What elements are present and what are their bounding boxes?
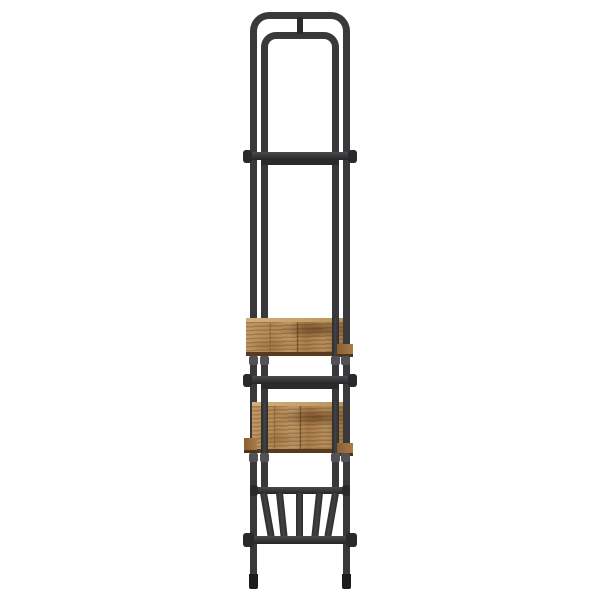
front-arch-frame (250, 12, 350, 588)
rail-end-cap (243, 533, 254, 547)
slat-shelf-bottom-rail (246, 536, 354, 544)
upper-rail-front (247, 152, 353, 160)
arch-connector-stub (297, 17, 303, 34)
post-connector-cap (249, 356, 258, 365)
middle-rail-front (247, 376, 353, 384)
post-connector-cap (331, 356, 340, 365)
rail-end-cap (348, 374, 357, 387)
post-connector-cap (260, 356, 269, 365)
post-connector-cap (331, 453, 340, 462)
left-foot-cap (249, 574, 258, 589)
post-connector-cap (341, 453, 350, 462)
lower-shelf-front-corner (244, 438, 257, 453)
product-photo (0, 0, 600, 600)
rail-end-cap (348, 150, 357, 163)
rail-end-cap (346, 533, 357, 547)
rail-end-cap (243, 150, 252, 163)
rail-end-cap (243, 374, 252, 387)
post-connector-cap (249, 453, 258, 462)
upper-wood-shelf (246, 318, 343, 356)
right-foot-cap (342, 574, 351, 589)
post-over-lower-shelf (261, 402, 268, 453)
post-connector-cap (341, 356, 350, 365)
slat-rail-end-cap (250, 485, 258, 496)
post-connector-cap (260, 453, 269, 462)
slat-rail-end-cap (342, 485, 350, 496)
